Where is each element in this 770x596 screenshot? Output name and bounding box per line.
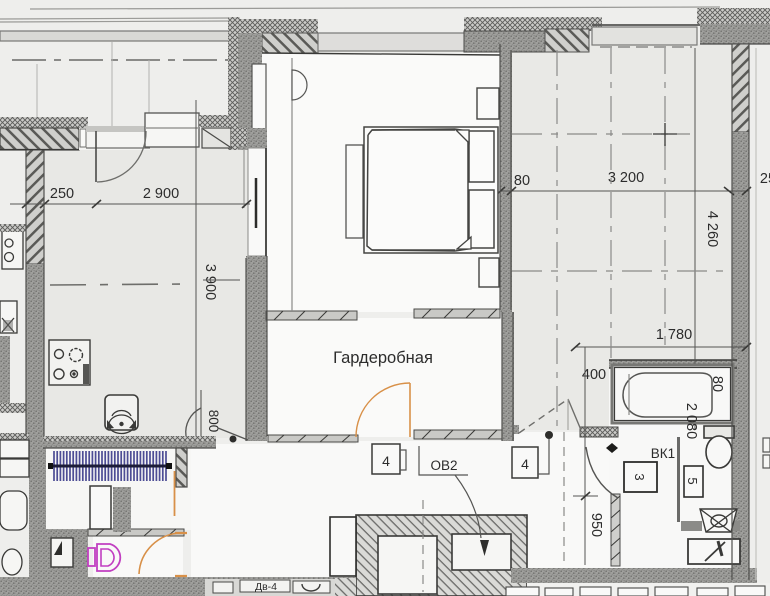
svg-text:80: 80	[709, 376, 725, 392]
svg-text:1 780: 1 780	[656, 327, 692, 343]
svg-text:Дв-4: Дв-4	[255, 581, 277, 593]
svg-text:4: 4	[521, 456, 529, 472]
svg-text:4: 4	[382, 453, 390, 469]
svg-text:ВК1: ВК1	[651, 446, 675, 461]
svg-text:3 900: 3 900	[202, 264, 218, 300]
svg-text:80: 80	[514, 173, 530, 189]
svg-text:25: 25	[760, 171, 770, 187]
svg-text:ОВ2: ОВ2	[430, 458, 457, 473]
svg-text:950: 950	[588, 513, 604, 537]
svg-text:250: 250	[50, 186, 74, 202]
svg-text:3 200: 3 200	[608, 170, 644, 186]
svg-text:3: 3	[632, 473, 647, 480]
svg-text:400: 400	[582, 367, 606, 383]
svg-text:Гардеробная: Гардеробная	[333, 349, 433, 367]
svg-text:5: 5	[685, 477, 700, 484]
svg-text:2 080: 2 080	[683, 403, 699, 439]
svg-text:2 900: 2 900	[143, 186, 179, 202]
svg-text:4 260: 4 260	[704, 211, 720, 247]
